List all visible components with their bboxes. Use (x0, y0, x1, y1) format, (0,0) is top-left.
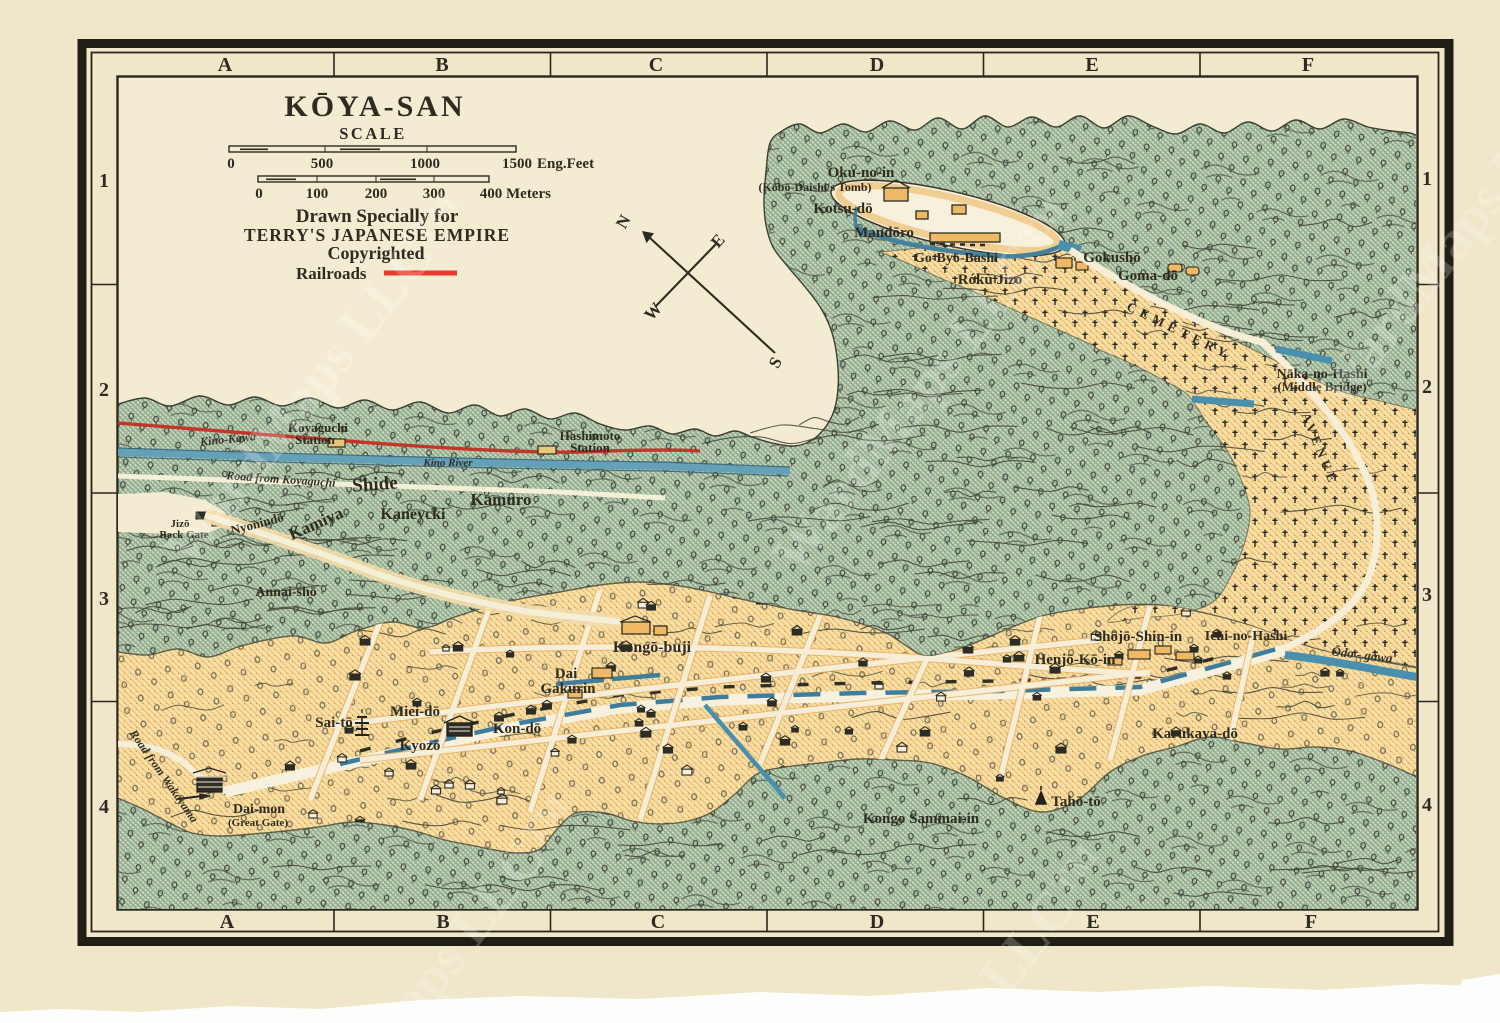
svg-text:Dai-mon: Dai-mon (233, 802, 285, 817)
svg-text:100: 100 (306, 186, 329, 202)
svg-text:Eng.Feet: Eng.Feet (537, 156, 594, 172)
svg-text:200: 200 (365, 186, 388, 202)
svg-text:3: 3 (1422, 584, 1432, 606)
svg-text:Dai: Dai (555, 666, 578, 682)
svg-text:Tahō-tō: Tahō-tō (1051, 794, 1100, 810)
svg-text:0: 0 (227, 156, 235, 172)
svg-text:1: 1 (1422, 168, 1432, 190)
svg-text:Gakurin: Gakurin (540, 681, 596, 697)
svg-text:1000: 1000 (410, 156, 440, 172)
svg-text:Kamuro: Kamuro (470, 490, 531, 509)
svg-text:2: 2 (1422, 376, 1432, 398)
svg-text:Station: Station (570, 440, 611, 455)
svg-text:Kongo Sammai-in: Kongo Sammai-in (863, 811, 980, 827)
svg-text:Kaneycki: Kaneycki (381, 506, 446, 523)
svg-text:SCALE: SCALE (339, 124, 407, 143)
svg-text:Oku-no-in: Oku-no-in (828, 165, 895, 181)
svg-text:Gokushō: Gokushō (1083, 250, 1141, 266)
svg-text:Kotsu-dō: Kotsu-dō (813, 201, 872, 217)
svg-text:Shide: Shide (352, 472, 399, 496)
svg-text:KŌYA-SAN: KŌYA-SAN (284, 90, 465, 123)
svg-text:Kongō-buji: Kongō-buji (613, 639, 692, 656)
svg-text:500: 500 (311, 156, 334, 172)
svg-text:C: C (651, 911, 665, 933)
svg-text:B: B (435, 54, 448, 76)
svg-text:400: 400 (480, 186, 503, 202)
svg-text:Henjō-Kō-in: Henjō-Kō-in (1035, 652, 1116, 668)
svg-text:(Kōbō-Daishi's Tomb): (Kōbō-Daishi's Tomb) (758, 180, 871, 194)
svg-text:D: D (870, 54, 884, 76)
svg-text:Annai-shō: Annai-shō (255, 585, 316, 600)
svg-text:4: 4 (1422, 794, 1432, 816)
svg-text:F: F (1305, 911, 1317, 933)
svg-text:4: 4 (99, 796, 109, 818)
svg-text:Sai-tō: Sai-tō (315, 715, 353, 731)
svg-text:(Great Gate): (Great Gate) (228, 817, 288, 829)
svg-text:D: D (870, 911, 884, 933)
svg-text:Karukaya-dō: Karukaya-dō (1152, 726, 1238, 742)
svg-text:Shōjō-Shin-in: Shōjō-Shin-in (1094, 629, 1183, 645)
svg-text:Kon-dō: Kon-dō (493, 721, 541, 737)
svg-text:1: 1 (99, 170, 109, 192)
svg-text:3: 3 (99, 588, 109, 610)
svg-text:Kino River: Kino River (422, 457, 473, 469)
svg-text:C: C (649, 54, 663, 76)
svg-text:Ichi-no-Hashi: Ichi-no-Hashi (1205, 629, 1288, 644)
svg-text:1500: 1500 (502, 156, 532, 172)
svg-text:0: 0 (255, 186, 263, 202)
svg-text:2: 2 (99, 379, 109, 401)
svg-text:Kyozō: Kyozō (400, 738, 441, 754)
svg-text:Miei-dō: Miei-dō (390, 704, 440, 720)
svg-text:A: A (220, 911, 235, 933)
svg-text:E: E (1085, 54, 1098, 76)
svg-text:A: A (218, 54, 233, 76)
svg-text:Goma-dō: Goma-dō (1118, 268, 1178, 284)
svg-text:Mandōro: Mandōro (854, 225, 914, 241)
svg-text:F: F (1302, 54, 1314, 76)
svg-text:Meters: Meters (506, 186, 551, 202)
